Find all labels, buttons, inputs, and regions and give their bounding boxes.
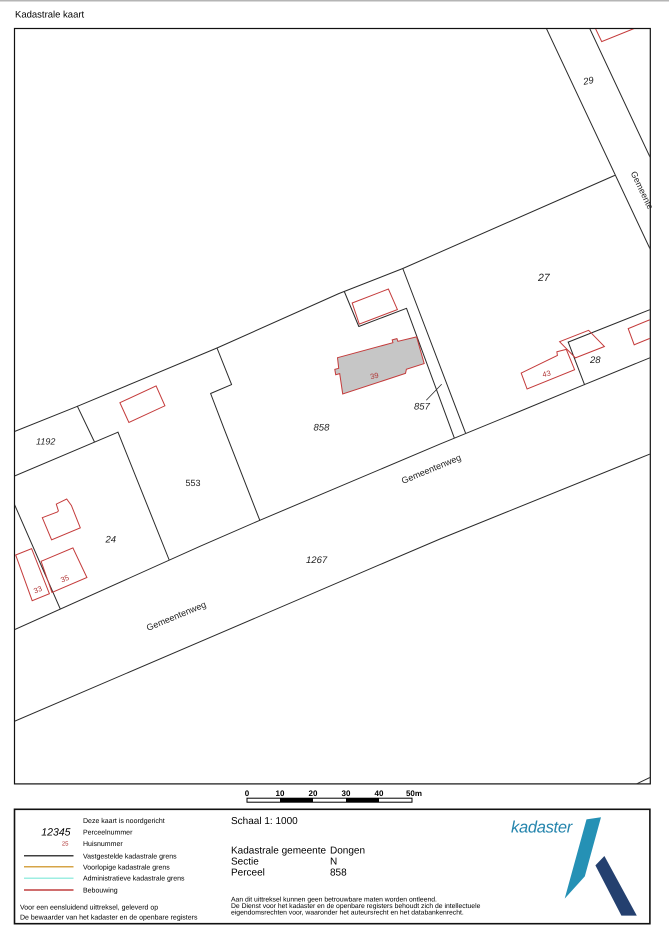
svg-text:1192: 1192 xyxy=(36,437,55,447)
svg-text:25: 25 xyxy=(62,841,69,848)
svg-text:Vastgestelde kadastrale grens: Vastgestelde kadastrale grens xyxy=(83,852,177,860)
svg-text:Schaal 1: 1000: Schaal 1: 1000 xyxy=(231,816,298,827)
svg-text:Voorlopige kadastrale grens: Voorlopige kadastrale grens xyxy=(83,864,170,872)
svg-text:Kadastrale gemeente: Kadastrale gemeente xyxy=(231,846,327,857)
svg-text:0: 0 xyxy=(245,789,250,798)
svg-text:40: 40 xyxy=(375,789,384,798)
svg-text:10: 10 xyxy=(276,789,285,798)
svg-text:20: 20 xyxy=(309,789,318,798)
svg-text:kadaster: kadaster xyxy=(511,819,574,837)
svg-text:Perceelnummer: Perceelnummer xyxy=(83,829,133,837)
svg-text:30: 30 xyxy=(342,789,351,798)
svg-text:50m: 50m xyxy=(406,789,422,798)
svg-text:Voor een eensluidend uittrekse: Voor een eensluidend uittreksel, gelever… xyxy=(20,904,158,912)
svg-text:Dongen: Dongen xyxy=(330,846,365,857)
svg-text:858: 858 xyxy=(313,423,330,434)
svg-text:Administratieve kadastrale gre: Administratieve kadastrale grens xyxy=(83,875,185,883)
svg-text:28: 28 xyxy=(589,355,601,366)
svg-text:1267: 1267 xyxy=(306,555,328,566)
svg-text:Perceel: Perceel xyxy=(231,868,265,879)
svg-text:858: 858 xyxy=(330,868,347,879)
svg-text:Deze kaart is noordgericht: Deze kaart is noordgericht xyxy=(83,817,165,825)
svg-text:Bebouwing: Bebouwing xyxy=(83,886,118,894)
svg-text:eigendomsrechten voor, waarond: eigendomsrechten voor, waaronder het aut… xyxy=(231,910,464,917)
svg-text:12345: 12345 xyxy=(41,827,70,839)
svg-text:Huisnummer: Huisnummer xyxy=(83,840,123,848)
svg-text:N: N xyxy=(330,857,337,868)
svg-text:553: 553 xyxy=(186,478,201,488)
svg-text:857: 857 xyxy=(414,402,431,413)
svg-text:24: 24 xyxy=(105,535,117,546)
svg-text:De bewaarder van het kadaster: De bewaarder van het kadaster en de open… xyxy=(20,914,198,922)
svg-text:Kadastrale kaart: Kadastrale kaart xyxy=(15,10,85,21)
svg-text:27: 27 xyxy=(537,272,551,284)
svg-text:Sectie: Sectie xyxy=(231,857,259,868)
